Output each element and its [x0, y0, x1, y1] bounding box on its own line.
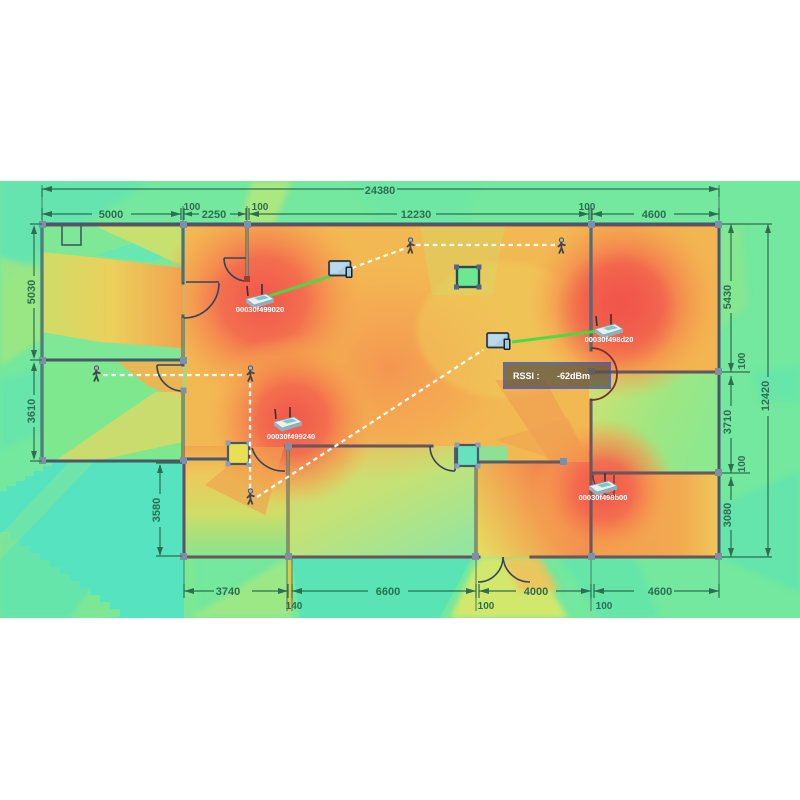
svg-text:100: 100: [184, 202, 201, 213]
svg-text:4000: 4000: [524, 586, 548, 598]
svg-text:6600: 6600: [376, 586, 400, 598]
svg-text:RSSI :: RSSI :: [513, 371, 540, 381]
svg-text:3580: 3580: [151, 498, 163, 522]
svg-text:3710: 3710: [722, 410, 734, 434]
svg-text:3740: 3740: [216, 586, 240, 598]
svg-text:24380: 24380: [365, 185, 396, 197]
svg-text:5000: 5000: [99, 209, 123, 221]
svg-text:00030f499020: 00030f499020: [236, 305, 284, 314]
svg-text:5430: 5430: [722, 285, 734, 309]
svg-text:3610: 3610: [26, 399, 38, 423]
svg-text:2250: 2250: [202, 209, 226, 221]
svg-text:4600: 4600: [648, 586, 672, 598]
svg-text:100: 100: [579, 202, 596, 213]
svg-text:4600: 4600: [642, 209, 666, 221]
svg-text:100: 100: [737, 455, 748, 472]
svg-text:12420: 12420: [760, 381, 772, 412]
svg-text:3080: 3080: [722, 503, 734, 527]
svg-text:100: 100: [596, 601, 613, 612]
svg-text:00030f498b00: 00030f498b00: [579, 493, 628, 502]
svg-text:-62dBm: -62dBm: [557, 371, 590, 381]
svg-text:12230: 12230: [401, 209, 432, 221]
svg-text:5030: 5030: [26, 280, 38, 304]
svg-text:100: 100: [478, 601, 495, 612]
svg-text:00030f498d20: 00030f498d20: [585, 335, 634, 344]
svg-text:00030f499240: 00030f499240: [267, 432, 315, 441]
svg-text:140: 140: [286, 601, 303, 612]
svg-text:100: 100: [737, 352, 748, 369]
svg-text:100: 100: [252, 202, 269, 213]
